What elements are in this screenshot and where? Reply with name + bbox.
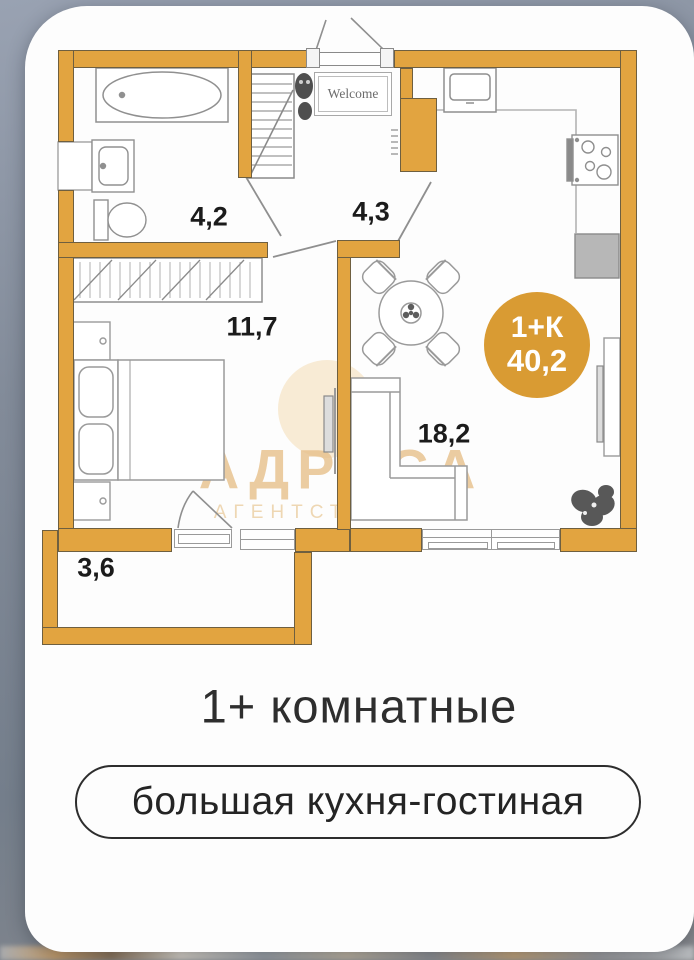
wardrobe-icon	[70, 258, 262, 302]
entrance-threshold	[318, 52, 382, 66]
bathroom-sink-icon	[92, 140, 134, 192]
entrance-door-swing-icon	[316, 18, 384, 50]
room-area-living: 18,2	[418, 419, 471, 450]
badge-total-area: 40,2	[507, 344, 567, 378]
welcome-mat-text: Welcome	[328, 86, 379, 102]
dining-set-icon	[359, 258, 462, 368]
wall	[394, 50, 637, 68]
room-area-hallway: 4,3	[352, 197, 390, 228]
caption-pill-text: большая кухня-гостиная	[132, 780, 585, 824]
floor-plan: АДРЕСА АГЕНТСТВО Н	[0, 0, 694, 660]
apartment-type-badge: 1+К 40,2	[484, 292, 590, 398]
bathroom-door-leaf	[246, 177, 281, 236]
welcome-mat: Welcome	[314, 72, 392, 116]
balcony-door-panel	[174, 529, 232, 548]
caption-pill: большая кухня-гостиная	[75, 765, 641, 839]
kitchen-counter-line	[437, 110, 576, 233]
wall	[337, 240, 400, 258]
stove-icon	[567, 135, 618, 185]
toilet-icon	[94, 200, 146, 240]
caption-title: 1+ комнатные	[201, 679, 518, 734]
bedroom-window	[240, 529, 295, 550]
wall	[58, 242, 268, 258]
fridge-icon	[575, 234, 619, 278]
wall	[620, 50, 637, 552]
door-post	[306, 48, 320, 68]
wall	[295, 528, 350, 552]
wall	[400, 68, 413, 100]
door-post	[380, 48, 394, 68]
living-window	[422, 529, 560, 550]
room-area-bedroom: 11,7	[226, 312, 277, 343]
badge-layout: 1+К	[511, 311, 564, 344]
panel-ticks	[391, 130, 398, 154]
shaft-niche	[58, 142, 92, 190]
room-area-bathroom: 4,2	[190, 202, 228, 233]
listing-card: АДРЕСА АГЕНТСТВО Н	[25, 6, 694, 952]
room-area-balcony: 3,6	[77, 553, 115, 584]
hall-closet-icon	[248, 74, 294, 178]
wall	[294, 552, 312, 645]
watermark-subtitle: АГЕНТСТВО Н	[214, 502, 422, 524]
bathtub-icon	[96, 68, 228, 122]
plant-icon	[568, 485, 618, 526]
kitchen-sink-icon	[444, 68, 496, 112]
wall	[58, 528, 172, 552]
nightstand-icon	[72, 322, 110, 520]
wall	[337, 240, 351, 530]
wall	[58, 50, 308, 68]
entry-decor-icon	[295, 73, 313, 120]
wall	[58, 50, 74, 142]
wall	[560, 528, 637, 552]
bedroom-door-leaf	[273, 241, 336, 257]
wall	[238, 50, 252, 178]
wall	[400, 98, 437, 172]
living-tv-icon	[597, 338, 620, 456]
living-door-leaf	[397, 182, 431, 243]
wall	[350, 528, 422, 552]
real-estate-floorplan-card: { "plan": { "welcome_mat": "Welcome", "r…	[0, 0, 694, 960]
wall	[42, 627, 312, 645]
